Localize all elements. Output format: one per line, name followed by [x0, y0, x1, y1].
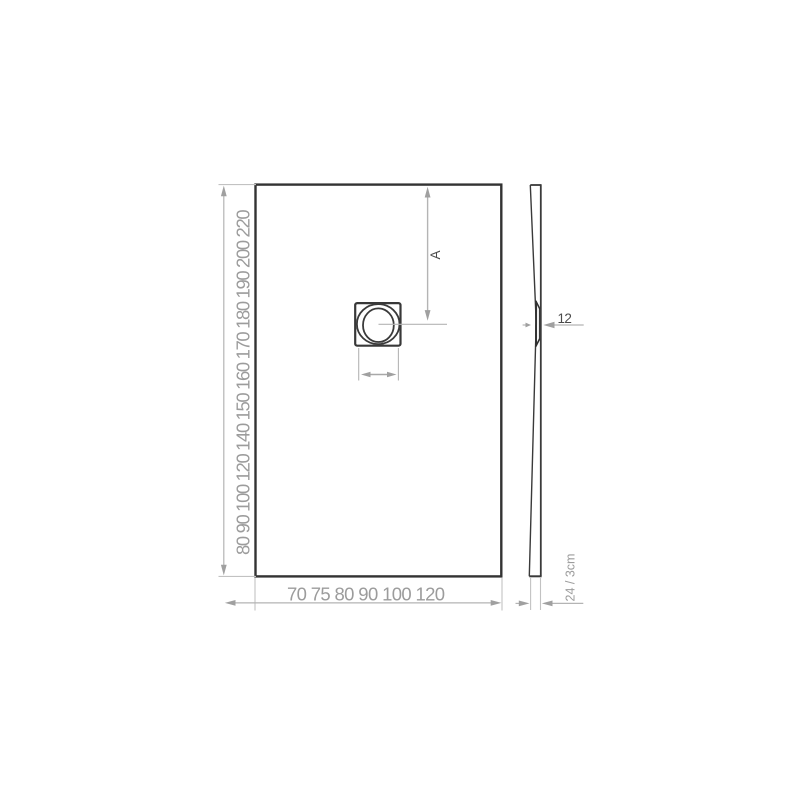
svg-text:12: 12 — [558, 311, 572, 326]
svg-text:80 90 100 120 140 150 160 170: 80 90 100 120 140 150 160 170 180 190 20… — [232, 210, 253, 555]
svg-text:A: A — [428, 250, 443, 259]
svg-text:24 / 3cm: 24 / 3cm — [564, 554, 578, 602]
svg-text:70 75 80 90 100 120: 70 75 80 90 100 120 — [287, 584, 445, 605]
